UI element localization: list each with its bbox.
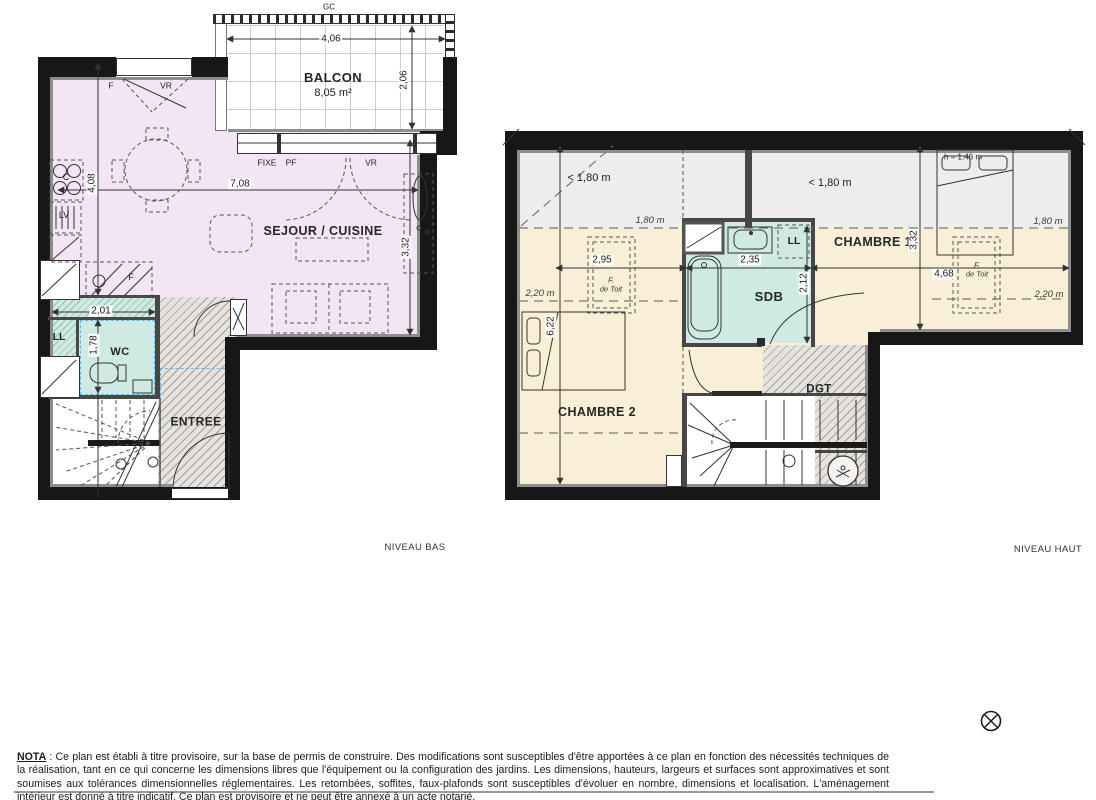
partition	[682, 218, 686, 347]
wall-liner	[50, 77, 228, 80]
entry-threshold	[172, 488, 228, 499]
balcony-area-label: 8,05 m²	[314, 87, 351, 99]
dim-sdb-width: 2,35	[738, 255, 761, 266]
dgt-side-area	[815, 396, 867, 452]
bay-fixe-label: FIXE	[258, 158, 277, 167]
window-vr-label: VR	[160, 81, 172, 90]
room-label-sdb: SDB	[755, 290, 784, 304]
partition	[687, 393, 867, 396]
hob-label: C	[63, 173, 70, 183]
wall-segment	[225, 337, 240, 500]
line-180-right-label: 1,80 m	[1033, 217, 1062, 227]
dim-balcony-width: 4,06	[319, 34, 342, 45]
wall-segment	[505, 487, 880, 500]
dishwasher-label: LV	[59, 211, 69, 221]
room-label-entree: ENTREE	[170, 415, 221, 428]
window-stair	[666, 455, 682, 487]
under-180-left-label: < 1,80 m	[567, 172, 610, 184]
nota-paragraph: NOTA : Ce plan est établi à titre provis…	[17, 751, 889, 800]
dim-balcony-depth: 2,06	[399, 68, 410, 91]
fridge-label: F	[128, 273, 134, 283]
dim-wc-height: 1,78	[89, 333, 100, 356]
water-heater-nook	[815, 452, 867, 487]
partition	[682, 343, 762, 347]
wall-segment	[1071, 143, 1083, 345]
guardrail-label: GC	[323, 4, 335, 13]
wall-segment	[225, 337, 437, 350]
wall-segment	[437, 131, 457, 155]
window-left-2	[40, 356, 80, 398]
partition	[48, 317, 160, 320]
dim-chambre1-height: 3,32	[909, 228, 920, 251]
plan-title-haut: NIVEAU HAUT	[1014, 545, 1082, 555]
roof-window-left-label: F. de Toit	[600, 276, 622, 295]
nota-label: NOTA	[17, 751, 46, 763]
wall-liner	[1068, 150, 1071, 332]
wall-liner	[237, 334, 420, 337]
roof-window-right-label: F. de Toit	[966, 261, 988, 280]
room-label-chambre1: CHAMBRE 1	[834, 236, 912, 250]
partition	[815, 450, 867, 453]
window-f-label: F	[108, 81, 113, 90]
dim-wc-width: 2,01	[89, 306, 112, 317]
room-label-sejour-cuisine: SEJOUR / CUISINE	[264, 225, 383, 239]
partition	[682, 393, 687, 487]
bay-vr-label: VR	[365, 158, 377, 167]
dim-sejour-height: 4,08	[87, 171, 98, 194]
wall-liner	[517, 484, 868, 487]
compass-icon	[982, 712, 1001, 731]
balcony-guardrail-top	[213, 14, 455, 24]
wall-segment	[868, 345, 880, 500]
room-label-wc: WC	[110, 346, 129, 358]
wall-liner	[517, 150, 1071, 153]
washer-label-haut: LL	[788, 236, 801, 248]
plan-title-bas: NIVEAU BAS	[384, 543, 445, 553]
wall-liner	[880, 329, 1068, 332]
dim-sejour-right-height: 3,32	[401, 235, 412, 258]
wall-liner	[865, 345, 868, 487]
low-ceiling-strip	[517, 150, 1071, 228]
dim-total-height: 6,22	[546, 314, 557, 337]
room-label-dgt: DGT	[806, 384, 831, 397]
window-left-1	[40, 260, 80, 300]
door-sejour-entree	[230, 299, 247, 336]
partition	[155, 295, 160, 397]
bay-window	[237, 133, 437, 154]
bay-pf-label: PF	[286, 158, 297, 167]
wall-liner	[517, 150, 520, 487]
wall-segment	[443, 57, 457, 133]
partition	[76, 318, 79, 360]
washer-label-bas: LL	[53, 332, 66, 344]
partition	[682, 218, 815, 222]
under-180-right-label: < 1,80 m	[808, 177, 851, 189]
dim-sejour-width: 7,08	[228, 179, 251, 190]
wall-segment	[420, 131, 437, 350]
dim-chambre1-width: 4,68	[932, 269, 955, 280]
wall-liner	[50, 484, 172, 487]
balcony-guardrail-right	[445, 14, 455, 60]
wall-liner	[417, 155, 420, 337]
line-180-left-label: 1,80 m	[635, 216, 664, 226]
window-top	[116, 58, 192, 76]
wall-segment	[192, 57, 228, 77]
wall-segment	[505, 143, 517, 500]
bed-height-label: h = 1,46 m	[944, 154, 982, 163]
wall-segment	[505, 131, 1083, 150]
partition	[745, 150, 752, 228]
room-label-chambre2: CHAMBRE 2	[558, 406, 636, 420]
line-220-right-label: 2,20 m	[1034, 290, 1063, 300]
room-label-balcon: BALCON	[304, 71, 362, 85]
floor-plan-sheet: GC 4,06 BALCON 8,05 m² 2,06 F VR FIXE PF…	[0, 0, 1096, 800]
line-220-left-label: 2,20 m	[525, 289, 554, 299]
dim-chambre2-width: 2,95	[590, 255, 613, 266]
nota-text: : Ce plan est établi à titre provisoire,…	[17, 751, 889, 800]
wall-segment	[868, 332, 1083, 345]
staircase-area-bas	[48, 398, 158, 487]
dim-sdb-height: 2,12	[799, 271, 810, 294]
partition	[811, 218, 815, 347]
